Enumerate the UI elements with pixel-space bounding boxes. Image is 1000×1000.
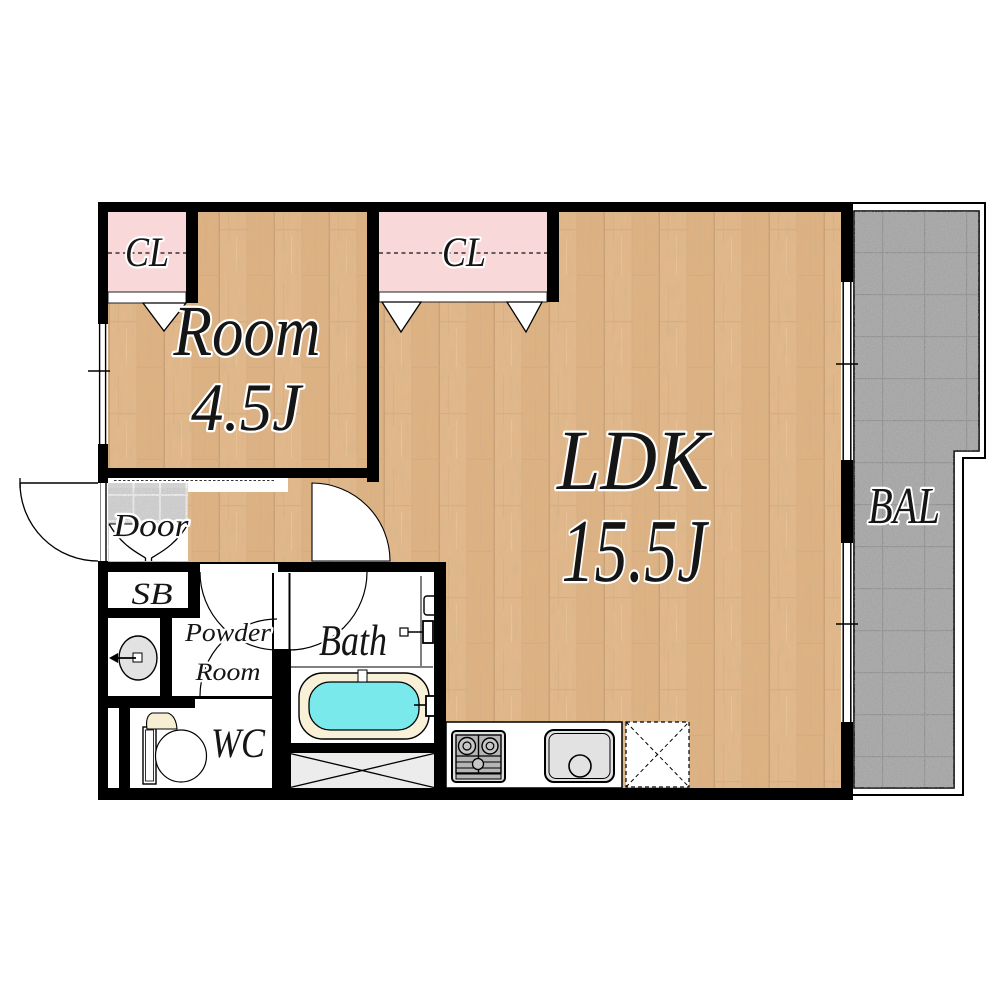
svg-text:Powder: Powder: [184, 618, 272, 647]
svg-text:Bath: Bath: [319, 616, 387, 665]
svg-text:LDK: LDK: [555, 412, 713, 508]
svg-text:Room: Room: [194, 659, 260, 686]
svg-text:4.5J: 4.5J: [191, 369, 304, 445]
svg-text:Door: Door: [112, 507, 189, 543]
svg-text:CL: CL: [442, 230, 486, 276]
svg-text:CL: CL: [125, 230, 169, 276]
svg-text:SB: SB: [132, 576, 173, 611]
svg-text:WC: WC: [211, 721, 266, 767]
svg-text:BAL: BAL: [868, 478, 940, 535]
svg-text:Room: Room: [173, 291, 321, 371]
svg-text:15.5J: 15.5J: [562, 502, 710, 601]
